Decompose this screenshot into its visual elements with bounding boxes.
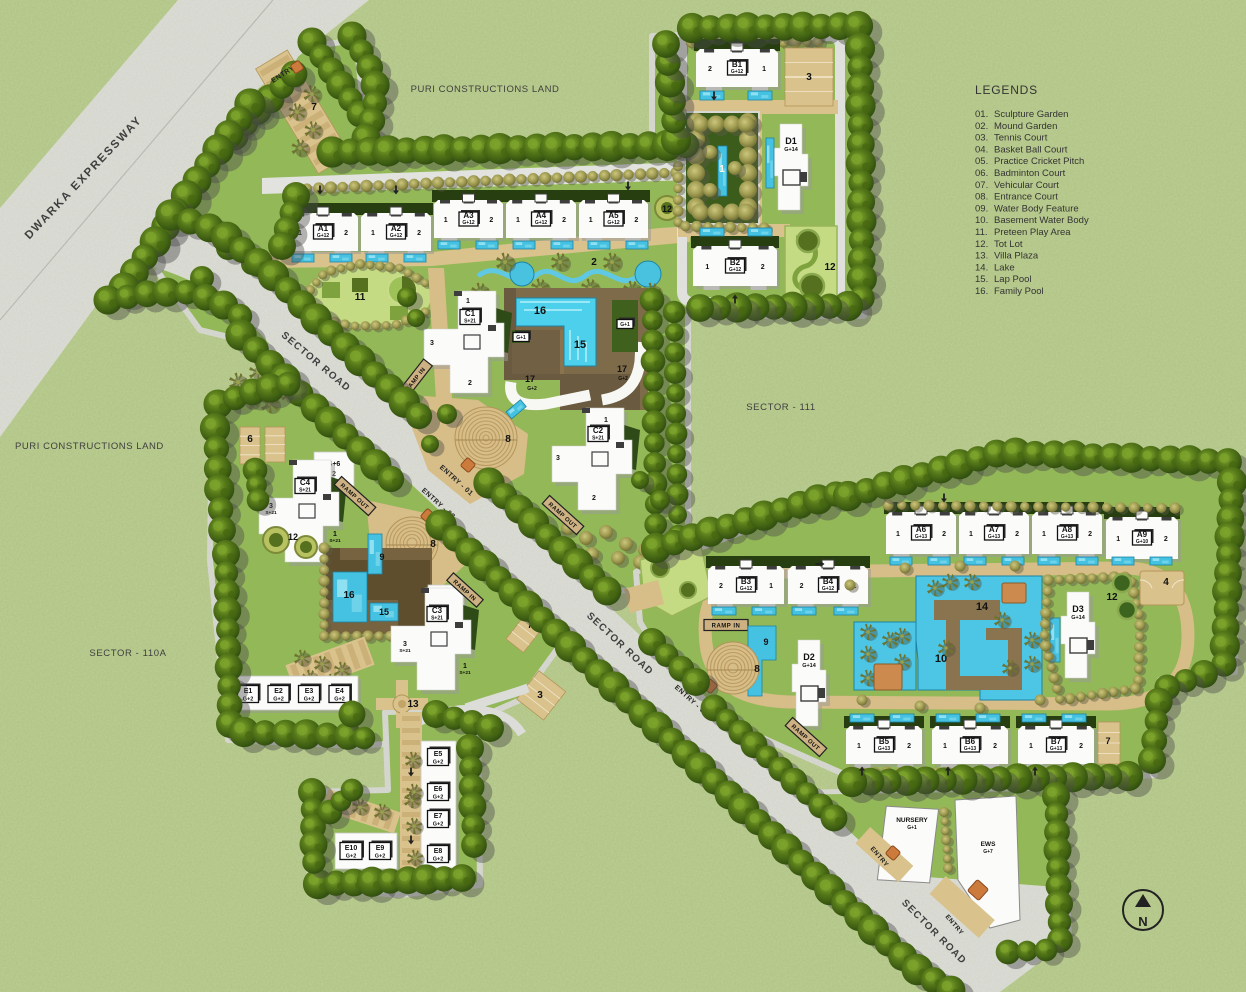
svg-text:G+2: G+2: [334, 697, 345, 703]
svg-text:Vehicular Court: Vehicular Court: [994, 180, 1059, 191]
svg-text:G+12: G+12: [729, 267, 742, 273]
svg-text:A4: A4: [536, 211, 547, 220]
svg-text:G+13: G+13: [988, 534, 1001, 540]
svg-text:1: 1: [769, 583, 773, 590]
svg-text:2: 2: [708, 66, 712, 73]
svg-text:02.: 02.: [975, 121, 988, 132]
svg-text:1: 1: [516, 217, 520, 224]
svg-text:E4: E4: [335, 688, 344, 695]
svg-text:G+12: G+12: [731, 69, 744, 75]
svg-text:G+14: G+14: [1071, 615, 1086, 621]
svg-text:G+2: G+2: [618, 376, 628, 382]
svg-text:G+12: G+12: [390, 233, 403, 239]
svg-text:9: 9: [379, 552, 384, 562]
svg-text:G+2: G+2: [433, 760, 444, 766]
svg-text:Water Body Feature: Water Body Feature: [994, 203, 1079, 214]
svg-text:D3: D3: [1072, 604, 1084, 614]
svg-text:2: 2: [634, 217, 638, 224]
svg-text:12: 12: [288, 532, 298, 542]
svg-text:2: 2: [719, 583, 723, 590]
svg-text:PURI CONSTRUCTIONS LAND: PURI CONSTRUCTIONS LAND: [411, 84, 560, 95]
svg-text:Lake: Lake: [994, 262, 1015, 273]
svg-text:12: 12: [824, 262, 836, 273]
svg-text:3: 3: [537, 690, 543, 701]
svg-text:E8: E8: [434, 848, 443, 855]
svg-text:G+13: G+13: [878, 746, 891, 752]
svg-text:2: 2: [942, 531, 946, 538]
svg-text:G+12: G+12: [535, 220, 548, 226]
svg-text:2: 2: [907, 743, 911, 750]
svg-text:B7: B7: [1051, 737, 1062, 746]
svg-text:Tot Lot: Tot Lot: [994, 239, 1023, 250]
svg-text:15.: 15.: [975, 274, 988, 285]
svg-text:B2: B2: [730, 258, 741, 267]
svg-text:16: 16: [343, 590, 355, 601]
svg-text:C1: C1: [465, 309, 476, 318]
svg-text:G+7: G+7: [983, 849, 993, 855]
svg-text:S+21: S+21: [399, 648, 411, 654]
svg-text:13.: 13.: [975, 251, 988, 262]
svg-text:1: 1: [444, 217, 448, 224]
svg-text:Badminton Court: Badminton Court: [994, 168, 1066, 179]
svg-text:1: 1: [463, 663, 467, 670]
svg-text:A9: A9: [1137, 530, 1148, 539]
svg-text:1: 1: [333, 531, 337, 538]
svg-text:E9: E9: [376, 845, 385, 852]
svg-text:1: 1: [762, 66, 766, 73]
svg-text:3: 3: [806, 72, 812, 83]
svg-text:G+13: G+13: [1061, 534, 1074, 540]
svg-text:SECTOR - 111: SECTOR - 111: [746, 402, 816, 413]
svg-text:15: 15: [574, 339, 586, 351]
svg-text:B5: B5: [879, 737, 890, 746]
svg-text:07.: 07.: [975, 180, 988, 191]
svg-text:7: 7: [311, 102, 317, 113]
svg-text:04.: 04.: [975, 144, 988, 155]
svg-text:8: 8: [505, 434, 511, 445]
svg-text:S+21: S+21: [464, 319, 476, 325]
svg-text:1: 1: [604, 417, 608, 424]
svg-text:1: 1: [1042, 531, 1046, 538]
svg-text:Tennis Court: Tennis Court: [994, 133, 1048, 144]
svg-text:G+2: G+2: [304, 697, 315, 703]
svg-text:G+2: G+2: [346, 854, 357, 860]
svg-text:11.: 11.: [975, 227, 988, 238]
svg-text:1: 1: [943, 743, 947, 750]
svg-text:15: 15: [379, 607, 389, 617]
svg-text:A6: A6: [916, 525, 927, 534]
svg-text:G+14: G+14: [784, 147, 799, 153]
svg-text:06.: 06.: [975, 168, 988, 179]
svg-text:2: 2: [1088, 531, 1092, 538]
svg-text:3: 3: [556, 455, 560, 462]
svg-text:B3: B3: [741, 577, 752, 586]
svg-text:2: 2: [417, 230, 421, 237]
svg-text:N: N: [1138, 914, 1147, 929]
svg-text:1: 1: [589, 217, 593, 224]
svg-text:13: 13: [407, 699, 419, 710]
svg-text:Sculpture Garden: Sculpture Garden: [994, 109, 1068, 120]
svg-text:D2: D2: [803, 652, 815, 662]
svg-text:E10: E10: [345, 845, 358, 852]
svg-text:G+1: G+1: [907, 825, 917, 831]
svg-text:2: 2: [489, 217, 493, 224]
svg-text:17: 17: [617, 364, 627, 374]
svg-text:G+12: G+12: [822, 586, 835, 592]
svg-text:G+2: G+2: [273, 697, 284, 703]
svg-text:G+2: G+2: [527, 386, 537, 392]
svg-text:A2: A2: [391, 224, 402, 233]
svg-text:G+10: G+10: [1136, 539, 1149, 545]
svg-text:2: 2: [344, 230, 348, 237]
svg-text:14: 14: [976, 601, 989, 613]
svg-text:03.: 03.: [975, 133, 988, 144]
svg-text:8: 8: [754, 664, 760, 675]
svg-text:G+12: G+12: [740, 586, 753, 592]
svg-text:C2: C2: [593, 426, 604, 435]
svg-text:LEGENDS: LEGENDS: [975, 83, 1038, 97]
svg-text:Preteen Play Area: Preteen Play Area: [994, 227, 1071, 238]
svg-text:C4: C4: [300, 478, 311, 487]
svg-text:A5: A5: [608, 211, 619, 220]
svg-text:G+2: G+2: [433, 822, 444, 828]
svg-text:10.: 10.: [975, 215, 988, 226]
svg-text:1: 1: [466, 298, 470, 305]
svg-text:B4: B4: [823, 577, 834, 586]
svg-text:1: 1: [1029, 743, 1033, 750]
svg-text:2: 2: [562, 217, 566, 224]
svg-text:S+21: S+21: [431, 616, 443, 622]
svg-text:S+21: S+21: [592, 436, 604, 442]
svg-text:16: 16: [534, 305, 546, 317]
svg-text:EWS: EWS: [981, 841, 996, 848]
svg-text:2: 2: [1079, 743, 1083, 750]
svg-text:S+21: S+21: [459, 670, 471, 676]
svg-text:E6: E6: [434, 786, 443, 793]
svg-text:G+12: G+12: [607, 220, 620, 226]
svg-text:16.: 16.: [975, 286, 988, 297]
svg-text:4: 4: [1163, 577, 1169, 588]
svg-text:C3: C3: [432, 606, 443, 615]
svg-text:9: 9: [763, 637, 768, 647]
svg-text:11: 11: [355, 292, 366, 303]
svg-text:G+1: G+1: [516, 335, 526, 341]
svg-text:S+21: S+21: [299, 488, 311, 494]
svg-text:2: 2: [1015, 531, 1019, 538]
svg-text:1: 1: [371, 230, 375, 237]
svg-text:E7: E7: [434, 813, 443, 820]
svg-text:2: 2: [800, 583, 804, 590]
svg-text:G+2: G+2: [433, 795, 444, 801]
svg-text:G+14: G+14: [802, 663, 817, 669]
svg-text:12: 12: [662, 204, 672, 214]
svg-text:A8: A8: [1062, 525, 1073, 534]
svg-text:A3: A3: [463, 211, 474, 220]
svg-text:E5: E5: [434, 751, 443, 758]
svg-text:6: 6: [247, 434, 253, 445]
svg-text:2: 2: [592, 495, 596, 502]
svg-text:G+12: G+12: [317, 233, 330, 239]
svg-text:2: 2: [1164, 536, 1168, 543]
svg-text:2: 2: [468, 380, 472, 387]
svg-text:Practice Cricket Pitch: Practice Cricket Pitch: [994, 156, 1084, 167]
svg-text:B1: B1: [732, 60, 743, 69]
svg-text:Basket Ball Court: Basket Ball Court: [994, 144, 1068, 155]
svg-text:2: 2: [591, 257, 597, 268]
svg-text:A1: A1: [318, 224, 329, 233]
svg-text:1: 1: [857, 743, 861, 750]
svg-text:G+12: G+12: [462, 220, 475, 226]
svg-text:RAMP IN: RAMP IN: [712, 623, 741, 629]
svg-text:B6: B6: [965, 737, 976, 746]
svg-text:A7: A7: [989, 525, 1000, 534]
svg-text:12: 12: [1106, 592, 1118, 603]
svg-text:G+13: G+13: [1050, 746, 1063, 752]
svg-text:1: 1: [896, 531, 900, 538]
svg-text:S+21: S+21: [329, 538, 341, 544]
svg-text:2: 2: [761, 264, 765, 271]
svg-text:1: 1: [705, 264, 709, 271]
svg-text:2: 2: [993, 743, 997, 750]
svg-text:SECTOR - 110A: SECTOR - 110A: [89, 648, 166, 659]
svg-text:01.: 01.: [975, 109, 988, 120]
svg-text:08.: 08.: [975, 192, 988, 203]
svg-text:G+13: G+13: [964, 746, 977, 752]
svg-text:Entrance Court: Entrance Court: [994, 192, 1058, 203]
svg-text:Lap Pool: Lap Pool: [994, 274, 1032, 285]
svg-text:Family Pool: Family Pool: [994, 286, 1044, 297]
svg-text:Villa Plaza: Villa Plaza: [994, 251, 1039, 262]
svg-text:1: 1: [1116, 536, 1120, 543]
svg-text:17: 17: [525, 374, 535, 384]
svg-text:05.: 05.: [975, 156, 988, 167]
svg-text:G+2: G+2: [433, 857, 444, 863]
svg-text:NURSERY: NURSERY: [896, 817, 928, 824]
svg-text:E3: E3: [305, 688, 314, 695]
svg-text:PURI CONSTRUCTIONS LAND: PURI CONSTRUCTIONS LAND: [15, 441, 164, 452]
svg-text:G+13: G+13: [915, 534, 928, 540]
svg-text:14.: 14.: [975, 262, 988, 273]
svg-text:Basement Water Body: Basement Water Body: [994, 215, 1089, 226]
svg-text:G+2: G+2: [375, 854, 386, 860]
svg-text:E2: E2: [274, 688, 283, 695]
svg-text:12.: 12.: [975, 239, 988, 250]
svg-text:D1: D1: [785, 136, 797, 146]
svg-text:7: 7: [1105, 736, 1110, 746]
svg-text:3: 3: [403, 641, 407, 648]
svg-text:1: 1: [719, 164, 725, 175]
svg-text:1: 1: [969, 531, 973, 538]
svg-text:09.: 09.: [975, 203, 988, 214]
svg-text:Mound Garden: Mound Garden: [994, 121, 1057, 132]
svg-text:3: 3: [430, 340, 434, 347]
svg-text:G+1: G+1: [620, 322, 630, 328]
